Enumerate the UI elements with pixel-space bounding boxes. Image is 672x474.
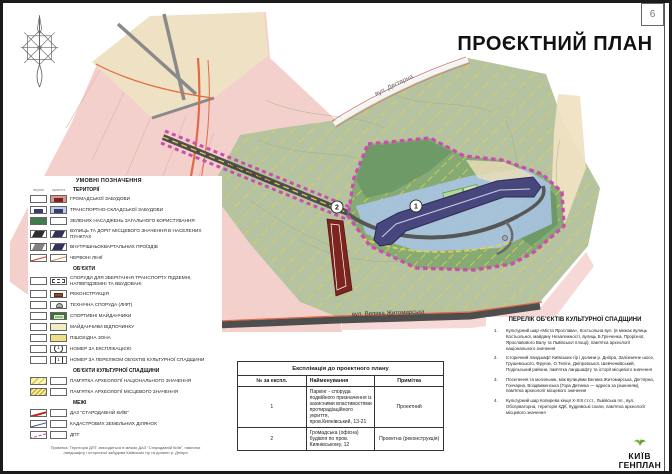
legend-item: ПІШОХІДНА ЗОНА: [30, 334, 222, 342]
explication-table: Експлікація до проектного плану № за екс…: [237, 361, 444, 451]
swatch: [30, 409, 47, 417]
table-row: 2 Громадська (офісна) будівля по пров. К…: [238, 428, 444, 451]
swatch: [30, 377, 47, 385]
swatch: 1: [50, 345, 67, 353]
swatch: [50, 420, 67, 428]
swatch: [50, 290, 67, 298]
legend-item: ПАМ'ЯТКА АРХЕОЛОГІЇ НАЦІОНАЛЬНОГО ЗНАЧЕН…: [30, 377, 222, 385]
swatch: [50, 217, 67, 225]
legend-item: ЧЕРВОНІ ЛІНІЇ: [30, 254, 222, 262]
swatch: 1: [50, 356, 67, 364]
swatch: [30, 195, 47, 203]
legend-section-heritage: ОБ'ЄКТИ КУЛЬТУРНОЇ СПАДЩИНИ: [73, 368, 222, 374]
legend-item: КАДАСТРОВИХ ЗЕМЕЛЬНИХ ДІЛЯНОК: [30, 420, 222, 428]
legend-item: 1 НОМЕР ЗА ЕКСПЛІКАЦІЄЮ: [30, 345, 222, 353]
legend-item: МАЙДАНЧИКИ ВІДПОЧИНКУ: [30, 323, 222, 331]
swatch: [30, 345, 47, 353]
heritage-list-title: ПЕРЕЛІК ОБ'ЄКТІВ КУЛЬТУРНОЇ СПАДЩИНИ: [486, 317, 664, 323]
swatch: [30, 206, 47, 214]
swatch: [30, 290, 47, 298]
swatch: [30, 431, 47, 439]
table-row: 1 Паркінг - споруда подвійного призначен…: [238, 387, 444, 428]
marker-1: 1: [410, 200, 422, 212]
legend-item: ПАМ'ЯТКА АРХЕОЛОГІЇ МІСЦЕВОГО ЗНАЧЕННЯ: [30, 388, 222, 396]
page-number: 6: [641, 3, 664, 26]
swatch: [30, 243, 47, 251]
table-title: Експлікація до проектного плану: [238, 362, 444, 376]
legend-item: ТЕХНІЧНА СПОРУДА (ЛІФТ): [30, 301, 222, 309]
swatch: [30, 388, 47, 396]
swatch: [50, 277, 67, 285]
swatch: [50, 254, 67, 262]
swatch: [50, 388, 67, 396]
swatch: [30, 301, 47, 309]
swatch: [50, 312, 67, 320]
kyivgenplan-logo: КИЇВ ГЕНПЛАН: [619, 434, 661, 470]
heritage-list: ПЕРЕЛІК ОБ'ЄКТІВ КУЛЬТУРНОЇ СПАДЩИНИ 1. …: [486, 317, 664, 419]
technical-structure: [503, 236, 508, 241]
list-item: 1. Культурний шар «Міста Ярослава», Кост…: [486, 328, 664, 352]
swatch: [30, 312, 47, 320]
svg-text:1: 1: [414, 204, 418, 211]
legend-title: УМОВНІ ПОЗНАЧЕННЯ: [76, 178, 222, 184]
table-header: Примітка: [375, 376, 444, 387]
legend-section-territories: ТЕРИТОРІЇ: [73, 187, 99, 193]
legend-item: ВУЛИЦЬ ТА ДОРІГ МІСЦЕВОГО ЗНАЧЕННЯ В НАС…: [30, 228, 222, 240]
table-header: Найменування: [306, 376, 375, 387]
legend-item: ДПТ: [30, 431, 222, 439]
swatch: [50, 206, 67, 214]
swatch: [50, 323, 67, 331]
swatch: [50, 377, 67, 385]
legend-item: ДАЗ "СТАРОДАВНІЙ КИЇВ": [30, 409, 222, 417]
swatch: [50, 243, 67, 251]
legend-item: 1 НОМЕР ЗА ПЕРЕЛІКОМ ОБ'ЄКТІВ КУЛЬТУРНОЇ…: [30, 356, 222, 364]
list-item: 4. Культурний шар Копирева кінця X-XIII …: [486, 398, 664, 416]
page-title: ПРОЄКТНИЙ ПЛАН: [452, 33, 658, 56]
swatch: [50, 334, 67, 342]
legend-section-borders: МЕЖІ: [73, 400, 222, 406]
legend-item: ВНУТРІШНЬОКВАРТАЛЬНИХ ПРОЇЗДІВ: [30, 243, 222, 251]
compass-rose-icon: [21, 15, 58, 86]
swatch: [30, 254, 47, 262]
legend-col-existing: існуючі: [30, 189, 47, 193]
swatch: [30, 334, 47, 342]
swatch: [50, 431, 67, 439]
swatch: [30, 217, 47, 225]
swatch: [30, 356, 47, 364]
marker-2: 2: [331, 201, 343, 213]
swatch: [50, 301, 67, 309]
list-item: 3. Поселення та могильник, між вулицями …: [486, 377, 664, 395]
legend-item: ЗЕЛЕНИХ НАСАДЖЕНЬ ЗАГАЛЬНОГО КОРИСТУВАНН…: [30, 217, 222, 225]
legend-note: Примітка: Територія ДПТ знаходиться в ме…: [48, 445, 203, 456]
chestnut-leaf-icon: [633, 438, 647, 447]
legend-section-objects: ОБ'ЄКТИ: [73, 266, 222, 272]
legend-item: РЕКОНСТРУКЦІЯ: [30, 290, 222, 298]
svg-text:2: 2: [335, 205, 339, 212]
page-inner-border: [664, 3, 665, 471]
swatch: [50, 195, 67, 203]
legend-item: ГРОМАДСЬКОЇ ЗАБУДОВИ: [30, 195, 222, 203]
table-header: № за експл.: [238, 376, 307, 387]
legend-item: ТРАНСПОРТНО-СКЛАДСЬКОЇ ЗАБУДОВИ: [30, 206, 222, 214]
swatch: [50, 409, 67, 417]
legend-col-projected: проектні: [50, 189, 67, 193]
swatch: [30, 230, 47, 238]
legend-item: СПОРУДИ ДЛЯ ЗБЕРІГАННЯ ТРАНСПОРТУ ПІДЗЕМ…: [30, 275, 222, 287]
legend-item: СПОРТИВНІ МАЙДАНЧИКИ: [30, 312, 222, 320]
swatch: [30, 420, 47, 428]
legend-panel: УМОВНІ ПОЗНАЧЕННЯ існуючі проектні ТЕРИТ…: [28, 176, 222, 457]
list-item: 2. Історичний ландшафт Київських гір і д…: [486, 355, 664, 373]
swatch: [50, 230, 67, 238]
swatch: [30, 277, 47, 285]
swatch: [30, 323, 47, 331]
